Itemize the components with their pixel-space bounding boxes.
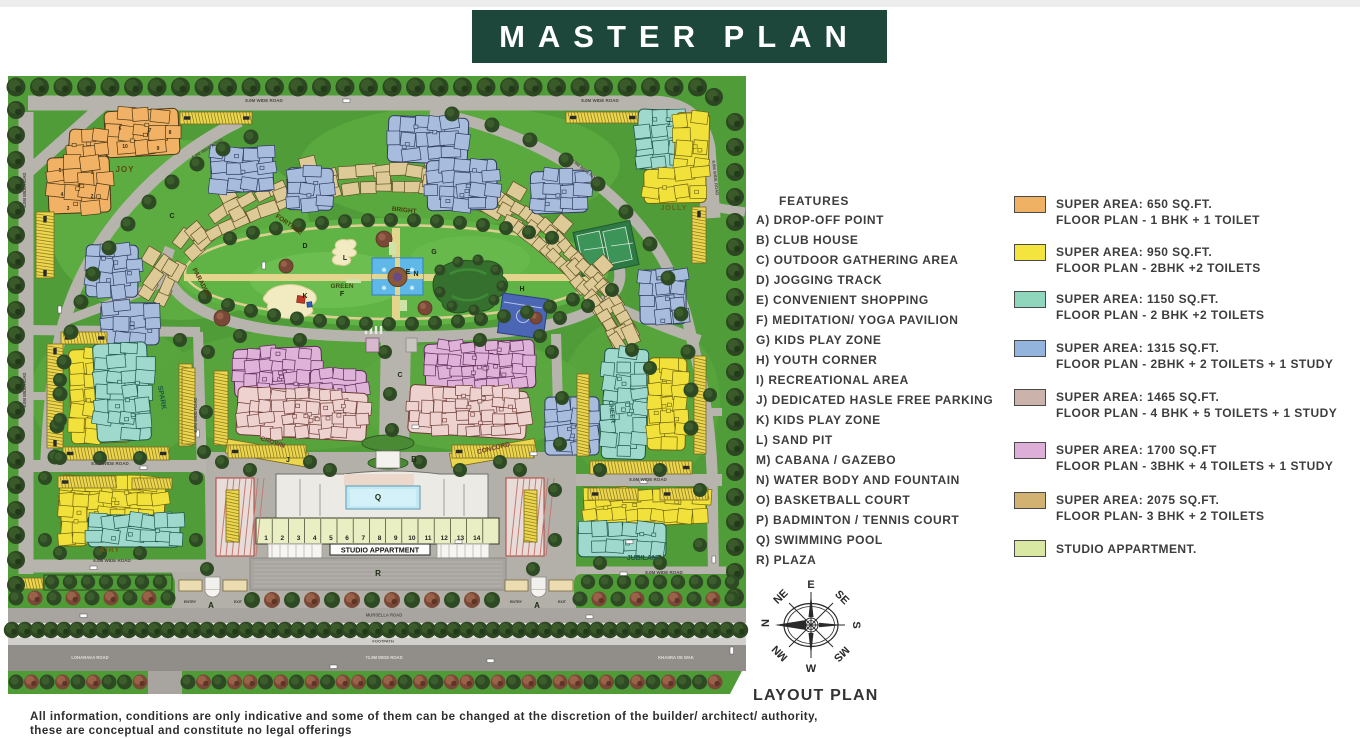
svg-text:9: 9 bbox=[157, 146, 160, 152]
svg-text:N: N bbox=[413, 271, 418, 278]
svg-text:7: 7 bbox=[361, 535, 365, 542]
svg-text:6.0M WIDE ROAD: 6.0M WIDE ROAD bbox=[22, 373, 27, 408]
svg-text:4: 4 bbox=[61, 192, 64, 198]
svg-text:2: 2 bbox=[280, 535, 284, 542]
svg-text:N: N bbox=[760, 619, 772, 627]
svg-text:G: G bbox=[431, 249, 437, 256]
svg-text:8.0M WIDE ROAD: 8.0M WIDE ROAD bbox=[581, 98, 619, 103]
svg-text:5: 5 bbox=[59, 168, 62, 174]
svg-text:5: 5 bbox=[329, 535, 333, 542]
svg-text:1: 1 bbox=[91, 170, 94, 176]
svg-text:3: 3 bbox=[297, 535, 301, 542]
svg-text:JOY: JOY bbox=[115, 165, 134, 174]
svg-text:JUBILANT: JUBILANT bbox=[627, 555, 662, 562]
svg-text:Q: Q bbox=[375, 493, 381, 502]
svg-text:K: K bbox=[302, 293, 307, 300]
svg-text:LOHARAKA ROAD: LOHARAKA ROAD bbox=[71, 655, 108, 660]
svg-text:8.0M WIDE ROAD: 8.0M WIDE ROAD bbox=[245, 98, 283, 103]
svg-text:8.0M WIDE ROAD: 8.0M WIDE ROAD bbox=[91, 461, 129, 466]
svg-text:KHASRA DE WAK: KHASRA DE WAK bbox=[658, 655, 694, 660]
svg-text:8.0M WIDE ROAD: 8.0M WIDE ROAD bbox=[645, 570, 683, 575]
svg-text:✱: ✱ bbox=[381, 285, 386, 292]
svg-text:GREEN: GREEN bbox=[330, 283, 353, 290]
svg-text:8.0M WIDE ROAD: 8.0M WIDE ROAD bbox=[629, 477, 667, 482]
svg-text:NE: NE bbox=[771, 587, 790, 606]
svg-text:9: 9 bbox=[394, 535, 398, 542]
svg-text:2: 2 bbox=[91, 194, 94, 200]
svg-text:FOOTPATH: FOOTPATH bbox=[372, 639, 394, 644]
svg-text:A: A bbox=[208, 601, 214, 610]
svg-text:J: J bbox=[286, 457, 290, 464]
svg-text:ENTRY: ENTRY bbox=[510, 600, 523, 604]
svg-text:8: 8 bbox=[169, 130, 172, 136]
svg-text:8: 8 bbox=[378, 535, 382, 542]
svg-text:E: E bbox=[807, 579, 814, 591]
svg-text:H: H bbox=[519, 286, 524, 293]
svg-text:10: 10 bbox=[408, 535, 416, 542]
svg-text:MS: MS bbox=[831, 644, 851, 664]
svg-text:14: 14 bbox=[473, 535, 481, 542]
svg-text:7: 7 bbox=[149, 128, 152, 134]
svg-text:✱: ✱ bbox=[381, 267, 386, 274]
svg-text:1: 1 bbox=[264, 535, 268, 542]
svg-text:W: W bbox=[806, 663, 817, 675]
svg-text:B: B bbox=[411, 455, 417, 464]
svg-text:C: C bbox=[169, 213, 174, 220]
svg-text:6: 6 bbox=[119, 126, 122, 132]
svg-text:✱: ✱ bbox=[409, 285, 414, 292]
svg-text:6.0M WIDE ROAD: 6.0M WIDE ROAD bbox=[93, 558, 131, 563]
svg-text:MURSELLA ROAD: MURSELLA ROAD bbox=[366, 613, 403, 618]
svg-text:EXIT: EXIT bbox=[234, 600, 243, 604]
svg-text:L: L bbox=[343, 255, 348, 262]
svg-text:R: R bbox=[375, 569, 381, 578]
svg-text:4: 4 bbox=[313, 535, 317, 542]
svg-text:3: 3 bbox=[67, 206, 70, 212]
svg-text:JOLLY: JOLLY bbox=[661, 205, 688, 212]
svg-text:EXIT: EXIT bbox=[558, 600, 567, 604]
svg-text:10: 10 bbox=[122, 144, 128, 150]
svg-text:4.0M WIDE ROAD: 4.0M WIDE ROAD bbox=[22, 173, 27, 208]
svg-text:E: E bbox=[406, 269, 411, 276]
svg-text:71.0M WIDE ROAD: 71.0M WIDE ROAD bbox=[365, 655, 402, 660]
svg-text:A: A bbox=[534, 601, 540, 610]
svg-text:C: C bbox=[397, 372, 402, 379]
svg-text:D: D bbox=[302, 243, 307, 250]
svg-text:ENTRY: ENTRY bbox=[184, 600, 197, 604]
svg-text:STUDIO APPARTMENT: STUDIO APPARTMENT bbox=[341, 546, 420, 555]
svg-text:S: S bbox=[850, 621, 862, 628]
svg-text:SE: SE bbox=[832, 588, 851, 607]
svg-text:MN: MN bbox=[770, 643, 791, 664]
svg-text:F: F bbox=[340, 291, 345, 298]
svg-text:11: 11 bbox=[425, 535, 432, 542]
svg-text:AIRY: AIRY bbox=[100, 547, 120, 554]
svg-text:6: 6 bbox=[345, 535, 349, 542]
svg-text:8.0M WIDE ROAD: 8.0M WIDE ROAD bbox=[193, 398, 198, 433]
svg-text:12: 12 bbox=[441, 535, 449, 542]
